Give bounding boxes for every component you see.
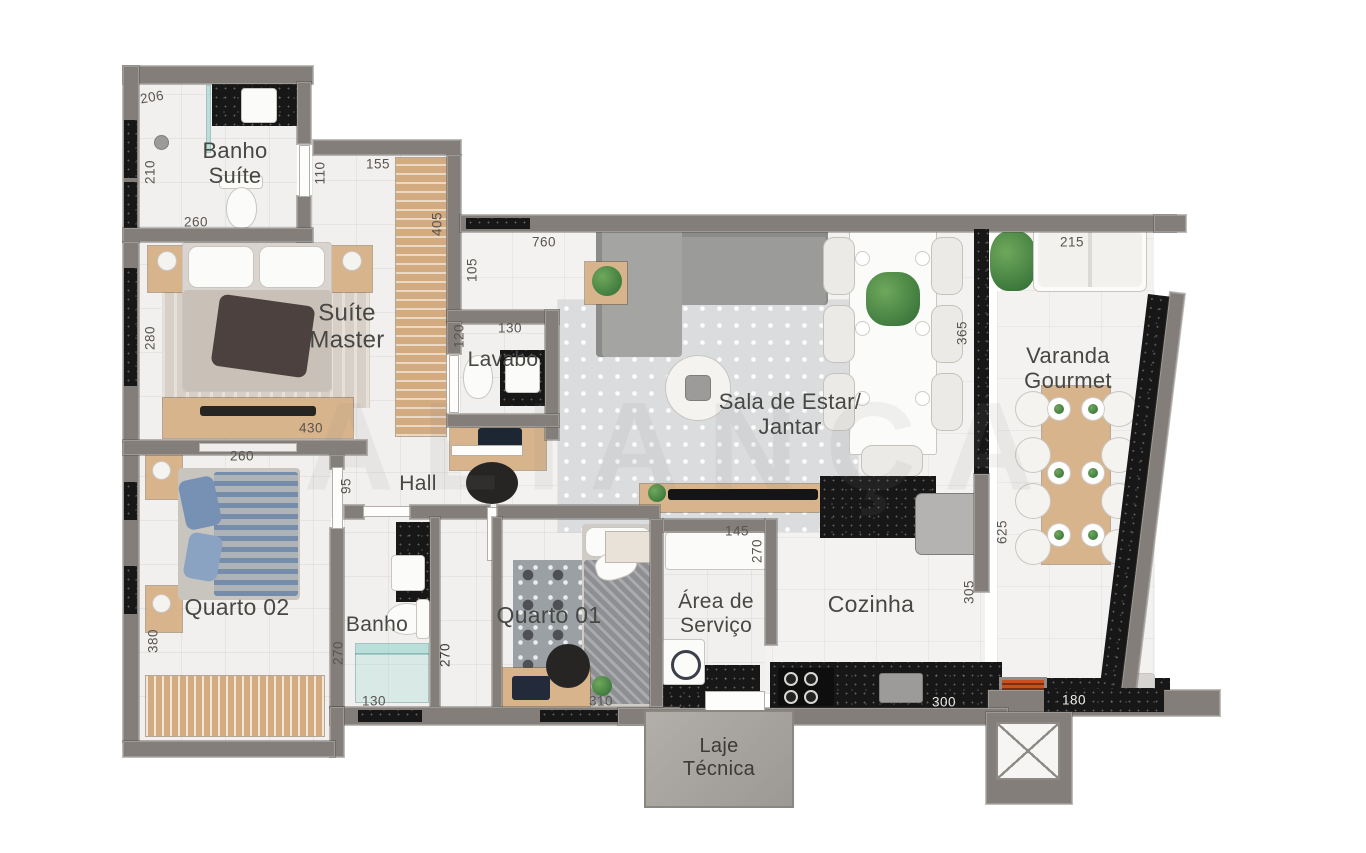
burner: [784, 690, 798, 704]
varanda-chair: [1016, 392, 1050, 426]
burner: [804, 672, 818, 686]
dim-110: 110: [313, 161, 328, 184]
quarto01-laptop: [512, 676, 550, 700]
plant: [592, 266, 622, 296]
burner: [784, 672, 798, 686]
room-label-banho: Banho: [346, 613, 408, 637]
dim-260b: 260: [230, 449, 254, 464]
dim-130a: 130: [498, 321, 522, 336]
room-label-area-servico: Área de Serviço: [678, 590, 754, 638]
wall: [447, 414, 559, 427]
dim-180: 180: [1062, 693, 1086, 708]
window-sill: [124, 268, 137, 386]
room-label-laje: Laje Técnica: [683, 735, 755, 781]
door-banho-suite: [300, 146, 309, 196]
dining-chair: [862, 446, 922, 476]
wall: [123, 741, 335, 757]
dining-chair: [932, 374, 962, 430]
plate-garnish: [1054, 530, 1064, 540]
suite-bench: [163, 398, 353, 438]
plate: [856, 322, 869, 335]
dining-chair: [824, 238, 854, 294]
wall: [460, 215, 1176, 232]
dim-260a: 260: [184, 215, 208, 230]
banho-sink: [392, 556, 424, 590]
toilet-bowl: [227, 188, 256, 228]
room-label-quarto02: Quarto 02: [185, 594, 290, 620]
dim-120: 120: [452, 324, 467, 348]
door-lavabo: [450, 356, 458, 412]
dim-130b: 130: [362, 694, 386, 709]
dim-270c: 270: [750, 539, 765, 563]
wall: [663, 519, 765, 532]
dim-105: 105: [465, 258, 480, 282]
wall: [430, 517, 440, 707]
wall: [650, 519, 663, 707]
banho-shower-glass: [356, 644, 428, 654]
dim-310: 310: [589, 694, 613, 709]
varanda-chair: [1016, 438, 1050, 472]
quarto01-chair: [546, 644, 590, 688]
window-sill: [540, 710, 630, 722]
dim-210: 210: [143, 160, 158, 184]
wall: [123, 66, 313, 84]
window-sill: [124, 120, 137, 178]
plate: [916, 392, 929, 405]
varanda-chair: [1016, 530, 1050, 564]
pillow: [189, 247, 253, 287]
room-label-sala: Sala de Estar/ Jantar: [719, 389, 861, 439]
plant: [648, 484, 666, 502]
wall: [330, 528, 344, 708]
door-servico: [706, 692, 764, 710]
window-sill: [358, 710, 422, 722]
plate-garnish: [1088, 468, 1098, 478]
dim-430: 430: [299, 421, 323, 436]
wall: [1154, 215, 1186, 232]
divider-granite: [974, 229, 989, 474]
wall: [344, 505, 364, 519]
quarto02-blanket: [214, 472, 298, 596]
room-label-suite-master: Suíte Master: [309, 300, 384, 355]
dim-760: 760: [532, 235, 556, 250]
burner: [804, 690, 818, 704]
quarto01-shelf: [606, 532, 654, 562]
desk-chair: [466, 462, 518, 504]
lamp: [343, 252, 361, 270]
dining-chair: [824, 306, 854, 362]
window-sill: [124, 182, 137, 234]
quarto02-wardrobe: [146, 676, 324, 736]
pillow: [260, 247, 324, 287]
plate-garnish: [1054, 468, 1064, 478]
suite-closet: [396, 158, 446, 436]
dim-300: 300: [932, 695, 956, 710]
dim-405: 405: [430, 212, 445, 236]
room-label-cozinha: Cozinha: [828, 591, 915, 617]
wall: [123, 228, 313, 242]
dim-95: 95: [339, 478, 354, 494]
plate: [856, 252, 869, 265]
wall-granite: [466, 218, 530, 229]
bench-top: [200, 406, 316, 416]
dim-365: 365: [955, 321, 970, 345]
dining-chair: [932, 238, 962, 294]
room-label-banho-suite: Banho Suíte: [202, 138, 267, 188]
suite-throw: [210, 294, 315, 379]
dim-155: 155: [366, 157, 390, 172]
lamp: [153, 595, 170, 612]
lamp: [153, 462, 170, 479]
shower-head-icon: [155, 136, 168, 149]
dim-625: 625: [995, 520, 1010, 544]
varanda-sofa-cushions: [1038, 231, 1142, 287]
plate-garnish: [1088, 530, 1098, 540]
door-banho: [364, 507, 410, 516]
washer-door: [671, 650, 701, 680]
plate-garnish: [1054, 404, 1064, 414]
shaft-hatch: [998, 724, 1058, 778]
dim-145: 145: [725, 524, 749, 539]
wall: [330, 455, 344, 469]
banho-suite-sink: [242, 89, 276, 122]
wall: [765, 519, 777, 645]
dim-270a: 270: [331, 641, 346, 665]
floor-plan: ALIANÇA Banho Suíte Suíte Master Lavabo …: [0, 0, 1366, 853]
lamp: [158, 252, 176, 270]
plate: [916, 322, 929, 335]
dining-centerpiece-plant: [866, 272, 920, 326]
wall: [297, 82, 311, 144]
tv: [668, 489, 818, 500]
banho-toilet-tank: [417, 600, 429, 638]
tray: [686, 376, 710, 400]
room-label-lavabo: Lavabo: [468, 348, 539, 372]
dim-305: 305: [962, 580, 977, 604]
plate: [916, 252, 929, 265]
dim-215: 215: [1060, 235, 1084, 250]
wall: [313, 140, 461, 155]
wall: [447, 155, 461, 322]
wall: [410, 505, 490, 519]
wall: [497, 505, 660, 519]
room-label-quarto01: Quarto 01: [497, 602, 602, 628]
room-label-varanda: Varanda Gourmet: [1024, 343, 1112, 393]
door-suite: [452, 446, 522, 455]
dim-380: 380: [146, 629, 161, 653]
varanda-chair: [1102, 392, 1136, 426]
wall: [974, 474, 989, 592]
kitchen-sink: [880, 674, 922, 702]
varanda-chair: [1016, 484, 1050, 518]
dim-280: 280: [143, 326, 158, 350]
dim-270b: 270: [438, 643, 453, 667]
window-sill: [124, 566, 137, 614]
room-label-hall: Hall: [399, 472, 436, 496]
fridge: [916, 494, 980, 554]
window-sill: [124, 482, 137, 520]
varanda-plant: [990, 231, 1036, 291]
plate-garnish: [1088, 404, 1098, 414]
